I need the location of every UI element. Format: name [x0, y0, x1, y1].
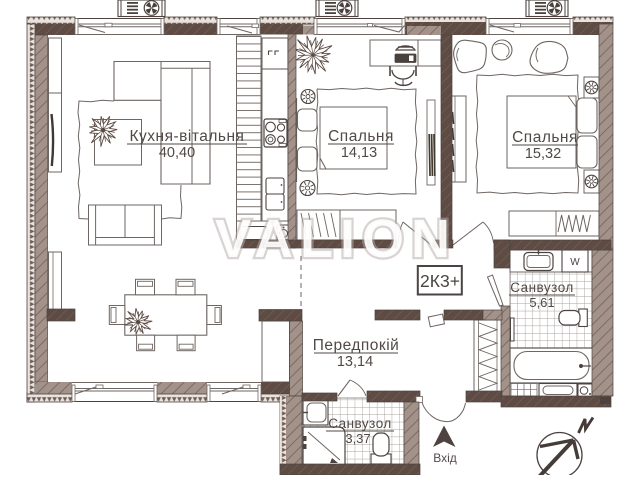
- svg-text:3,37: 3,37: [345, 431, 370, 446]
- svg-text:Санвузол: Санвузол: [328, 416, 392, 431]
- svg-text:Санвузол: Санвузол: [510, 280, 574, 295]
- svg-text:Вхід: Вхід: [433, 451, 457, 465]
- svg-text:13,14: 13,14: [337, 354, 373, 370]
- svg-text:Кухня-вітальня: Кухня-вітальня: [130, 128, 245, 145]
- svg-text:VALION: VALION: [215, 209, 457, 269]
- svg-text:Спальня: Спальня: [512, 129, 578, 146]
- svg-text:Спальня: Спальня: [328, 128, 394, 145]
- svg-text:2К3+: 2К3+: [420, 271, 460, 291]
- svg-text:5,61: 5,61: [529, 295, 554, 310]
- svg-text:Передпокій: Передпокій: [313, 337, 400, 354]
- svg-text:14,13: 14,13: [341, 145, 377, 161]
- svg-text:40,40: 40,40: [159, 145, 195, 161]
- svg-text:15,32: 15,32: [525, 146, 561, 162]
- svg-text:W: W: [570, 257, 580, 268]
